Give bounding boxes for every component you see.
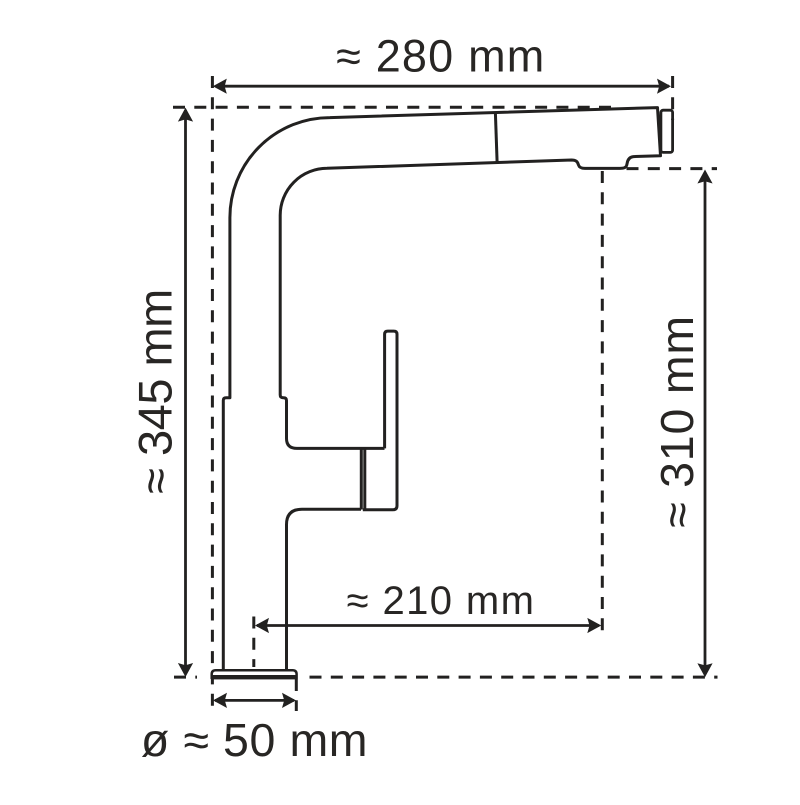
svg-text:≈ 345 mm: ≈ 345 mm [129, 289, 182, 494]
svg-text:≈ 310 mm: ≈ 310 mm [651, 315, 703, 528]
svg-text:≈ 280 mm: ≈ 280 mm [336, 30, 545, 81]
svg-text:ø ≈ 50 mm: ø ≈ 50 mm [141, 714, 368, 766]
svg-text:≈ 210 mm: ≈ 210 mm [347, 579, 536, 623]
